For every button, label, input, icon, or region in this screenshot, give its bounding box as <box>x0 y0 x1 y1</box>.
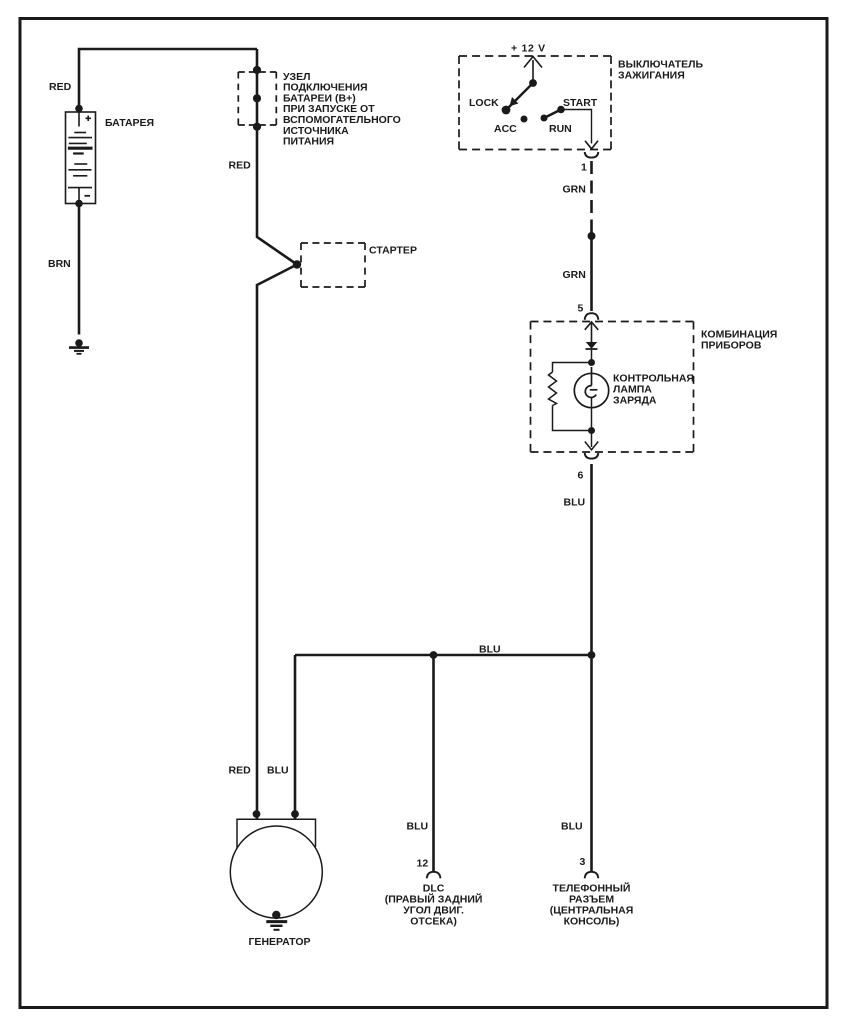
svg-text:ЗАЖИГАНИЯ: ЗАЖИГАНИЯ <box>618 70 685 82</box>
svg-text:КОНСОЛЬ): КОНСОЛЬ) <box>564 916 620 928</box>
svg-text:+ 12 V: + 12 V <box>511 43 546 55</box>
svg-text:BLU: BLU <box>267 765 289 777</box>
svg-text:ПРИБОРОВ: ПРИБОРОВ <box>701 340 762 352</box>
svg-text:START: START <box>563 97 598 109</box>
svg-text:ОТСЕКА): ОТСЕКА) <box>410 916 457 928</box>
svg-text:RED: RED <box>49 81 72 93</box>
svg-text:ГЕНЕРАТОР: ГЕНЕРАТОР <box>248 936 310 948</box>
svg-text:BRN: BRN <box>48 258 71 270</box>
svg-text:BLU: BLU <box>479 644 501 656</box>
svg-text:5: 5 <box>578 303 584 315</box>
svg-text:ПИТАНИЯ: ПИТАНИЯ <box>283 136 334 148</box>
svg-text:6: 6 <box>578 470 584 482</box>
svg-text:LOCK: LOCK <box>469 97 499 109</box>
svg-text:1: 1 <box>581 162 587 174</box>
svg-text:BLU: BLU <box>407 821 429 833</box>
svg-text:RUN: RUN <box>549 123 572 135</box>
svg-text:ЗАРЯДА: ЗАРЯДА <box>613 395 657 407</box>
svg-text:БАТАРЕЯ: БАТАРЕЯ <box>105 117 154 129</box>
svg-text:BLU: BLU <box>564 497 586 509</box>
svg-text:СТАРТЕР: СТАРТЕР <box>369 245 417 257</box>
svg-text:RED: RED <box>229 765 252 777</box>
svg-text:BLU: BLU <box>561 821 583 833</box>
svg-text:GRN: GRN <box>563 269 586 281</box>
svg-text:RED: RED <box>229 160 252 172</box>
svg-text:3: 3 <box>580 856 586 868</box>
svg-text:ACC: ACC <box>494 123 517 135</box>
svg-text:12: 12 <box>417 858 429 870</box>
svg-text:GRN: GRN <box>563 184 586 196</box>
